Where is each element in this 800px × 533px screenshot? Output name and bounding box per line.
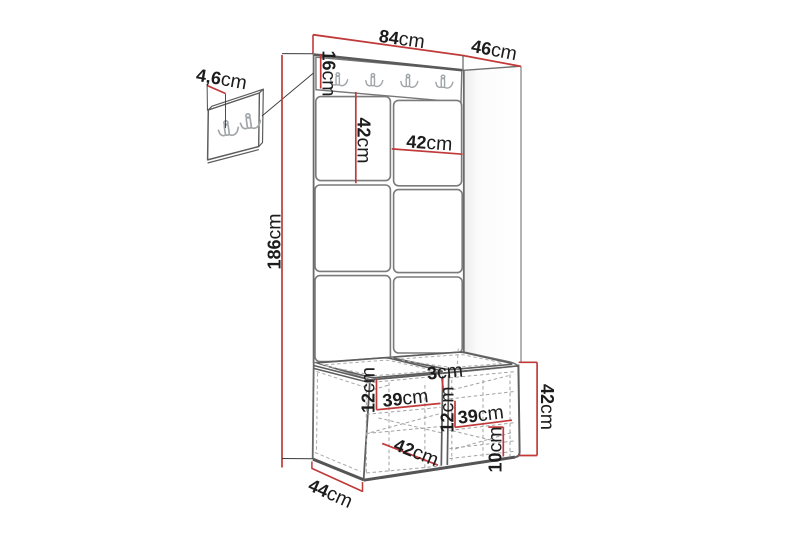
svg-text:12cm: 12cm xyxy=(358,367,380,413)
svg-text:42cm: 42cm xyxy=(406,130,453,155)
svg-text:16cm: 16cm xyxy=(318,50,340,96)
svg-text:42cm: 42cm xyxy=(536,384,558,430)
svg-text:10cm: 10cm xyxy=(485,426,507,472)
svg-text:12cm: 12cm xyxy=(437,386,459,432)
svg-text:3cm: 3cm xyxy=(426,359,464,384)
svg-text:42cm: 42cm xyxy=(353,117,375,163)
svg-text:186cm: 186cm xyxy=(264,213,286,269)
